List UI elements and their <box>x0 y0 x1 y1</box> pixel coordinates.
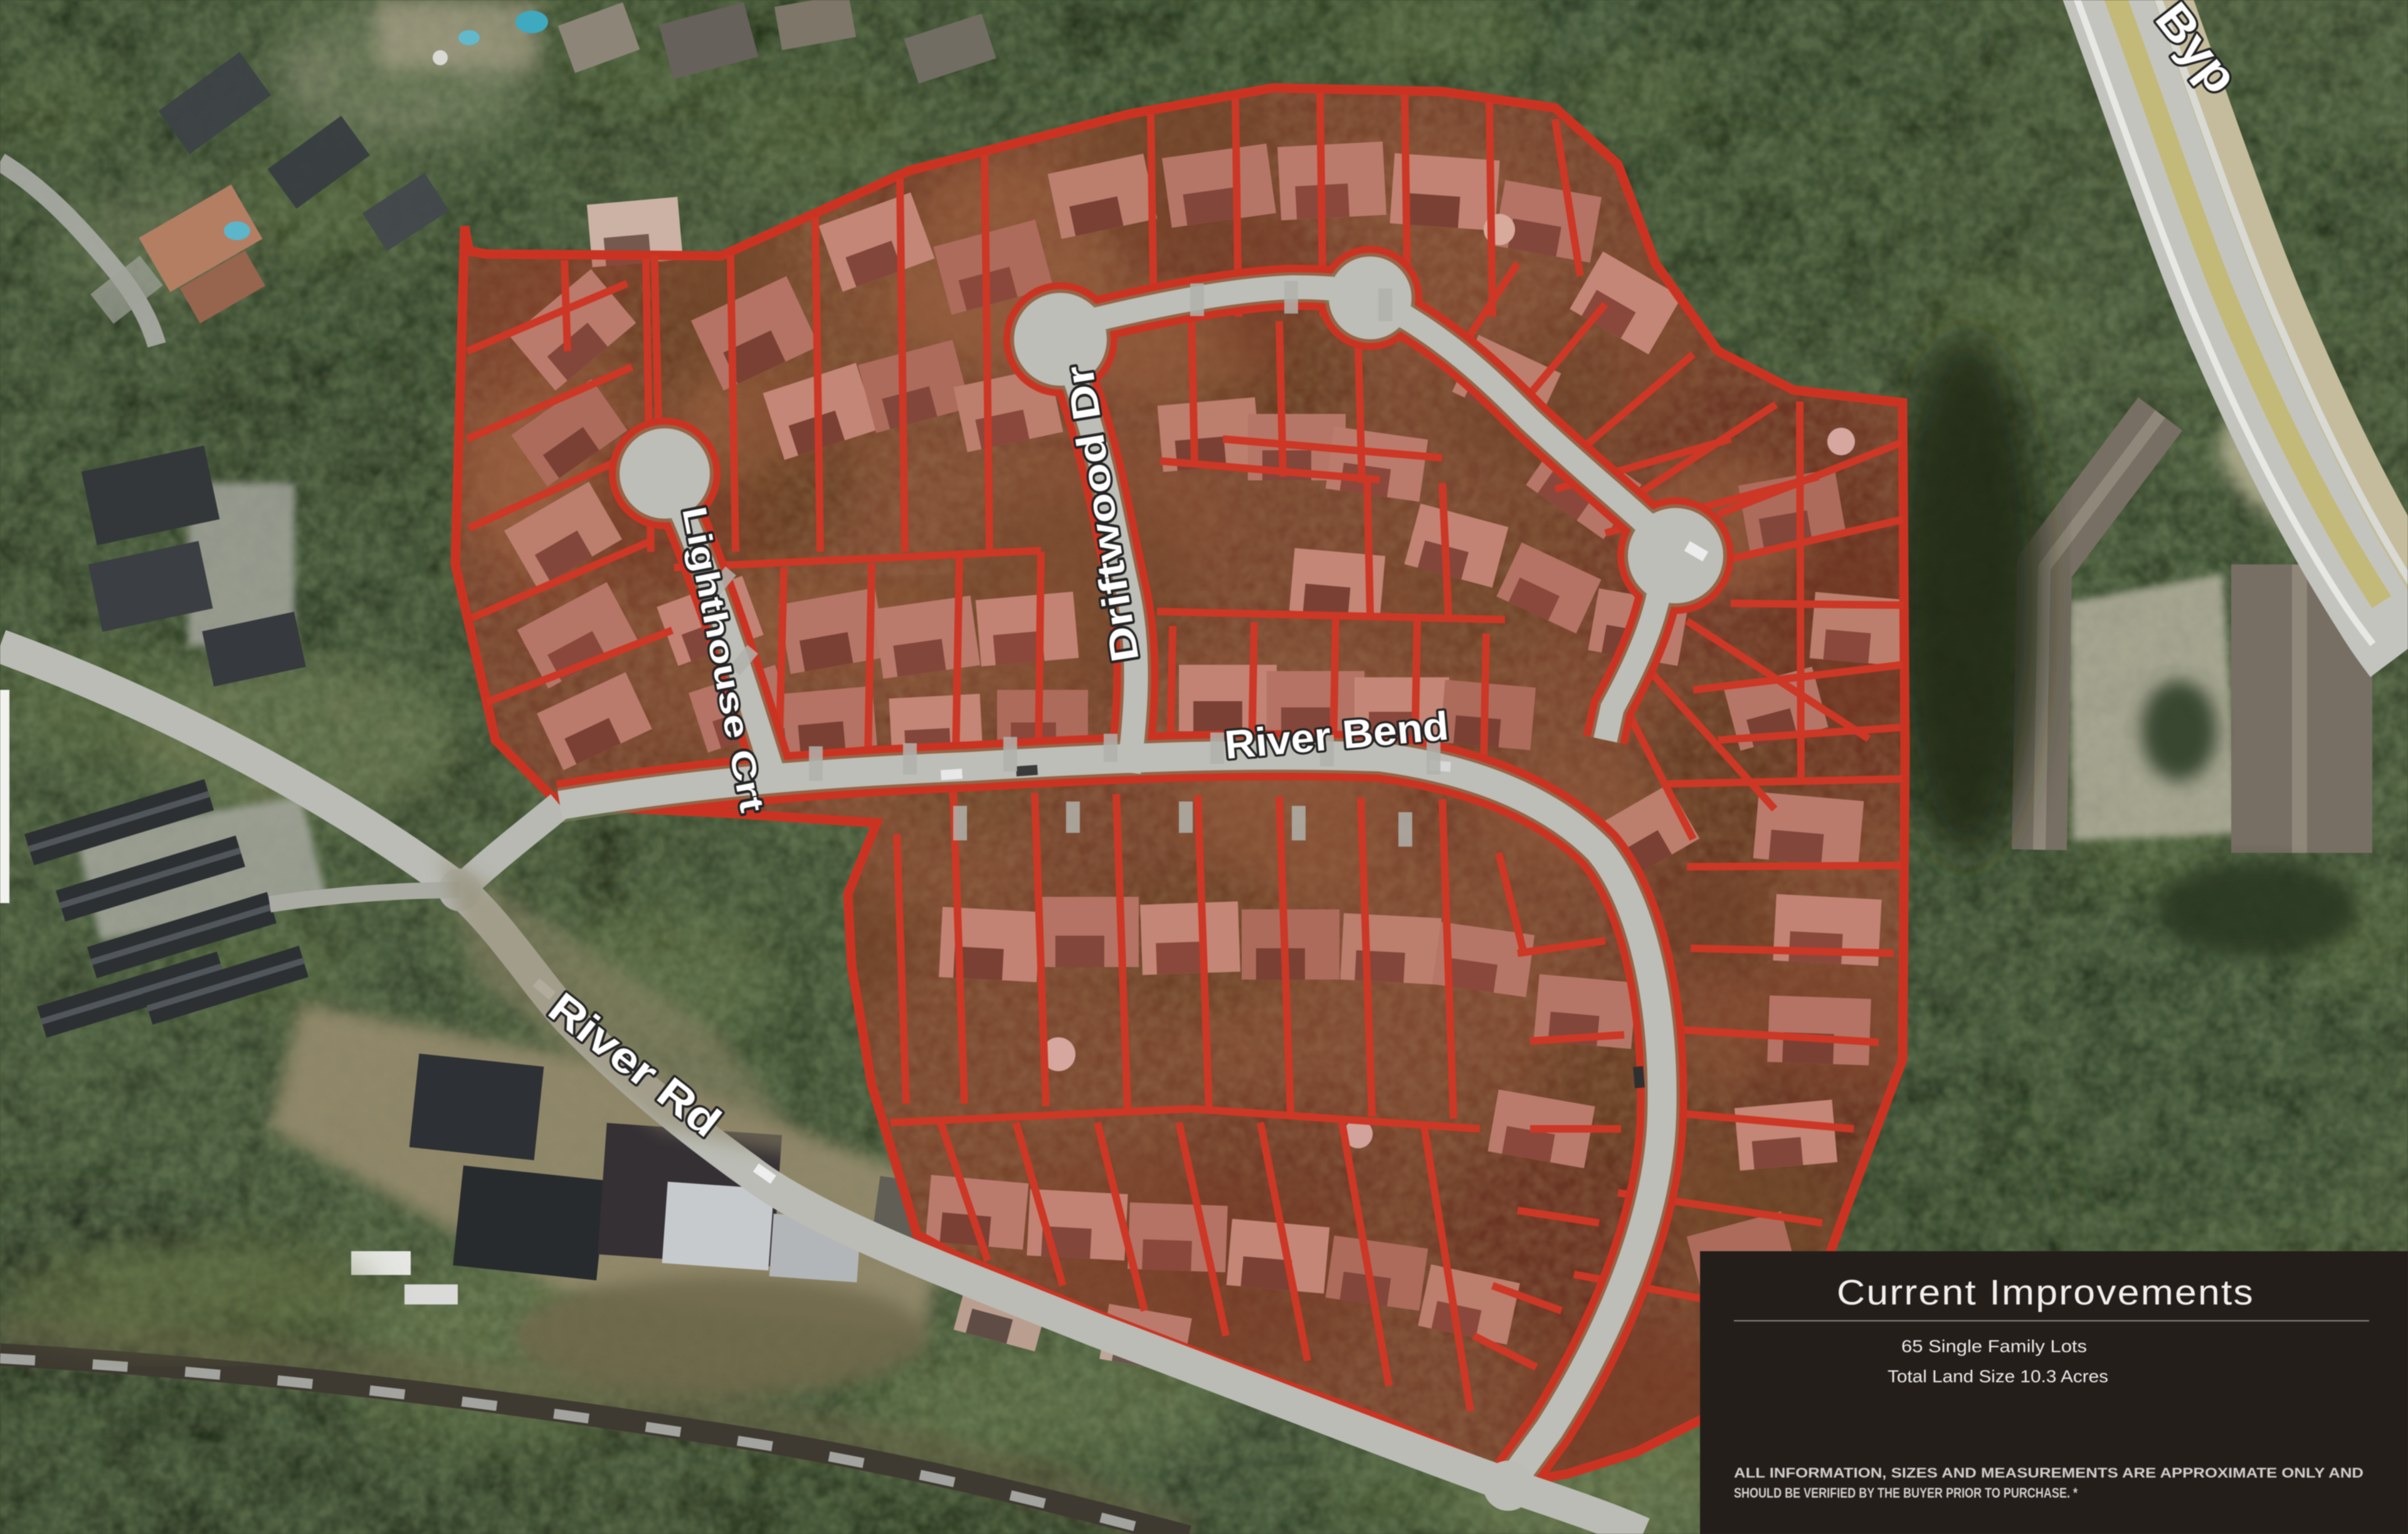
svg-text:SHOULD BE VERIFIED BY THE BUYE: SHOULD BE VERIFIED BY THE BUYER PRIOR TO… <box>1734 1485 2078 1501</box>
svg-text:Current Improvements: Current Improvements <box>1837 1272 2254 1313</box>
svg-text:ALL INFORMATION, SIZES AND MEA: ALL INFORMATION, SIZES AND MEASUREMENTS … <box>1734 1465 2363 1481</box>
svg-text:Total Land Size 10.3 Acres: Total Land Size 10.3 Acres <box>1888 1367 2108 1386</box>
svg-text:65 Single Family Lots: 65 Single Family Lots <box>1901 1336 2087 1356</box>
